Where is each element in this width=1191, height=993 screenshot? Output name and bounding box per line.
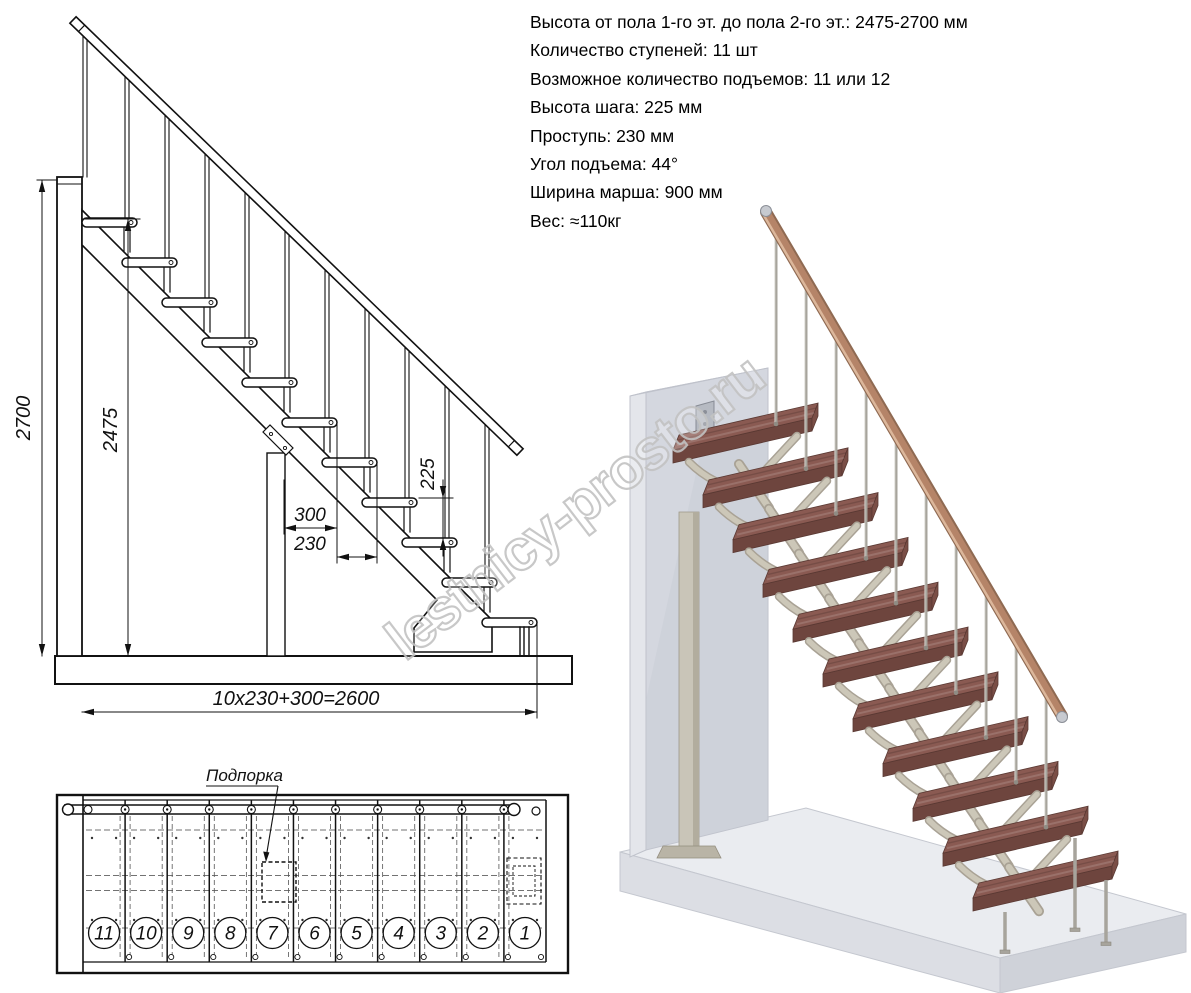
base-fitting bbox=[253, 954, 258, 959]
baluster-foot-joint bbox=[954, 691, 959, 696]
base-fitting bbox=[463, 954, 468, 959]
step-number-label: 5 bbox=[351, 924, 362, 945]
rail-fitting-pin bbox=[419, 808, 421, 810]
base-fitting bbox=[379, 954, 384, 959]
bottom-step-legs bbox=[520, 627, 529, 656]
step-number-label: 4 bbox=[393, 924, 404, 945]
baluster-foot-joint bbox=[894, 601, 899, 606]
baluster-foot-joint bbox=[1014, 780, 1019, 785]
technical-drawing-canvas: 2700 2475 225 300 230 bbox=[0, 0, 1191, 993]
step-number-label: 11 bbox=[94, 924, 114, 945]
rail-fitting-pin bbox=[461, 808, 463, 810]
base-fitting bbox=[538, 954, 543, 959]
screw-dot bbox=[301, 919, 303, 921]
tread-pin bbox=[249, 341, 253, 345]
screw-dot bbox=[283, 919, 285, 921]
rail-fitting-pin bbox=[292, 808, 294, 810]
plan-view-drawing: Подпорка 1110987654321 bbox=[57, 766, 568, 973]
screw-dot bbox=[428, 837, 430, 839]
screw-dot bbox=[470, 919, 472, 921]
screw-dot bbox=[115, 837, 117, 839]
screw-dot bbox=[91, 837, 93, 839]
base-fitting bbox=[169, 954, 174, 959]
leg-foot bbox=[1000, 950, 1010, 954]
screw-dot bbox=[325, 919, 327, 921]
screw-dot bbox=[367, 837, 369, 839]
tread-pin bbox=[449, 541, 453, 545]
screw-dot bbox=[343, 919, 345, 921]
rail-fitting-pin bbox=[166, 808, 168, 810]
dim-total-height: 2700 bbox=[13, 396, 35, 442]
tread-pin bbox=[129, 221, 133, 225]
screw-dot bbox=[241, 919, 243, 921]
step-number-label: 8 bbox=[225, 924, 236, 945]
dim-step-run: 230 bbox=[293, 534, 326, 555]
screw-dot bbox=[367, 919, 369, 921]
screw-dot bbox=[301, 837, 303, 839]
screw-dot bbox=[428, 919, 430, 921]
baluster-foot-joint bbox=[774, 422, 779, 427]
screw-dot bbox=[175, 837, 177, 839]
staircase-3d-render bbox=[620, 206, 1186, 993]
tread-pin bbox=[409, 501, 413, 505]
screw-dot bbox=[259, 919, 261, 921]
baluster-foot-joint bbox=[924, 646, 929, 651]
step-number-label: 6 bbox=[309, 924, 320, 945]
step-number-label: 2 bbox=[477, 924, 489, 945]
screw-dot bbox=[385, 837, 387, 839]
screw-dot bbox=[133, 837, 135, 839]
screw-dot bbox=[452, 919, 454, 921]
leg-foot bbox=[1070, 928, 1080, 932]
dim-riser: 225 bbox=[418, 458, 439, 491]
screw-dot bbox=[410, 919, 412, 921]
base-fitting bbox=[126, 954, 131, 959]
screw-dot bbox=[217, 837, 219, 839]
screw-dot bbox=[133, 919, 135, 921]
screw-dot bbox=[175, 919, 177, 921]
rail-fitting-pin bbox=[124, 808, 126, 810]
screw-dot bbox=[452, 837, 454, 839]
step-number-label: 1 bbox=[520, 924, 531, 945]
screw-dot bbox=[536, 837, 538, 839]
support-column bbox=[263, 425, 293, 656]
base-fitting bbox=[211, 954, 216, 959]
screw-dot bbox=[410, 837, 412, 839]
tread-pin bbox=[369, 461, 373, 465]
screw-dot bbox=[512, 837, 514, 839]
base-fitting bbox=[337, 954, 342, 959]
tread-pin bbox=[169, 261, 173, 265]
screw-dot bbox=[494, 837, 496, 839]
screw-dot bbox=[536, 919, 538, 921]
leg-foot bbox=[1101, 942, 1111, 946]
base-fitting bbox=[295, 954, 300, 959]
rail-fitting-pin bbox=[334, 808, 336, 810]
screw-dot bbox=[91, 919, 93, 921]
screw-dot bbox=[259, 837, 261, 839]
screw-dot bbox=[385, 919, 387, 921]
wall-post bbox=[57, 177, 82, 656]
dim-total-run: 10x230+300=2600 bbox=[213, 688, 380, 710]
screw-dot bbox=[199, 837, 201, 839]
rail-fitting-pin bbox=[376, 808, 378, 810]
screw-dot bbox=[157, 919, 159, 921]
rail-fitting-pin bbox=[503, 808, 505, 810]
screw-dot bbox=[325, 837, 327, 839]
step-number-label: 10 bbox=[136, 924, 158, 945]
baluster-foot-joint bbox=[1044, 825, 1049, 830]
screw-dot bbox=[241, 837, 243, 839]
screw-dot bbox=[157, 837, 159, 839]
rail-fitting-pin bbox=[208, 808, 210, 810]
tread-pin bbox=[209, 301, 213, 305]
support-label: Подпорка bbox=[206, 766, 283, 785]
screw-dot bbox=[115, 919, 117, 921]
screw-dot bbox=[283, 837, 285, 839]
step-number-label: 9 bbox=[183, 924, 194, 945]
baluster-foot-joint bbox=[834, 511, 839, 516]
screw-dot bbox=[343, 837, 345, 839]
step-number-label: 7 bbox=[267, 924, 279, 945]
rail-fitting-pin bbox=[250, 808, 252, 810]
screw-dot bbox=[217, 919, 219, 921]
tread-pin bbox=[329, 421, 333, 425]
handrail-bottom-cap bbox=[1057, 712, 1068, 723]
baluster-foot-joint bbox=[864, 556, 869, 561]
screw-dot bbox=[494, 919, 496, 921]
floor-slab bbox=[55, 656, 572, 684]
base-fitting bbox=[505, 954, 510, 959]
screw-dot bbox=[512, 919, 514, 921]
tread-pin bbox=[529, 621, 533, 625]
tread-pin bbox=[289, 381, 293, 385]
handrail-side bbox=[70, 17, 523, 455]
baluster-foot-joint bbox=[984, 735, 989, 740]
dim-tread-depth: 300 bbox=[294, 505, 326, 526]
screw-dot bbox=[470, 837, 472, 839]
handrail-top-cap bbox=[761, 206, 772, 217]
baluster-foot-joint bbox=[804, 467, 809, 472]
dim-clear-height: 2475 bbox=[100, 407, 122, 453]
base-fitting bbox=[421, 954, 426, 959]
screw-dot bbox=[199, 919, 201, 921]
rail-fitting bbox=[84, 806, 92, 814]
step-number-label: 3 bbox=[435, 924, 446, 945]
